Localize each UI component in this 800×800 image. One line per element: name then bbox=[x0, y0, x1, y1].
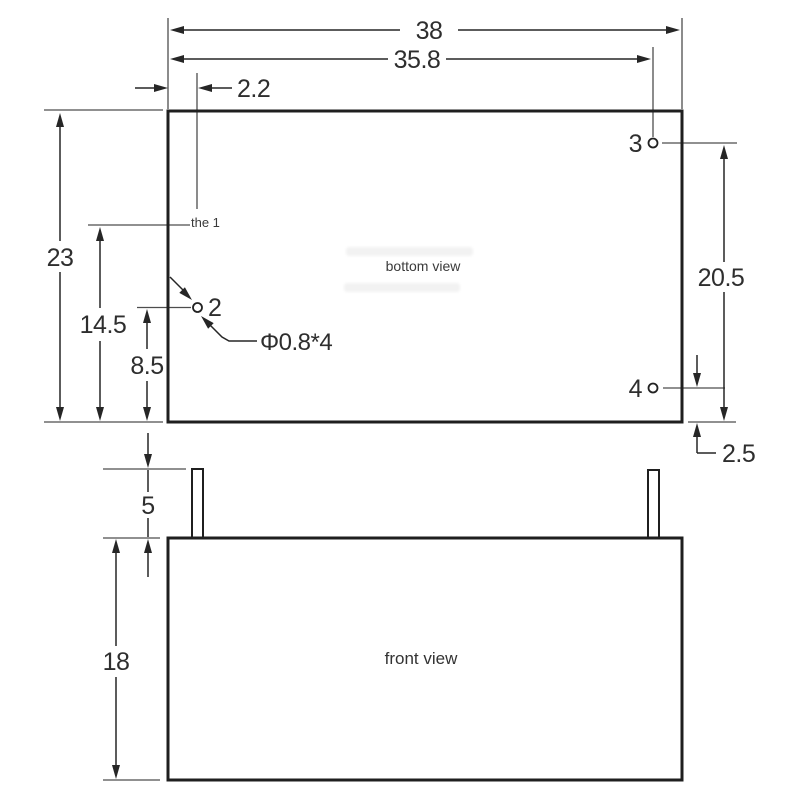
dim-pin-span-y-label: 20.5 bbox=[698, 264, 745, 292]
hole-diameter-callout-label: Φ0.8*4 bbox=[260, 329, 332, 356]
bottom-view-title: bottom view bbox=[386, 258, 462, 274]
front-view-title: front view bbox=[385, 649, 458, 668]
labels: 38 35.8 2.2 23 14.5 8.5 20.5 2.5 5 18 Φ0… bbox=[47, 17, 756, 676]
dim-pin4-offset-y-label: 2.5 bbox=[722, 440, 755, 468]
pin3-hole bbox=[649, 139, 658, 148]
front-view-left-pin bbox=[192, 469, 203, 538]
engineering-drawing-canvas: 38 35.8 2.2 23 14.5 8.5 20.5 2.5 5 18 Φ0… bbox=[0, 0, 800, 800]
dim-pin-length-label: 5 bbox=[141, 492, 154, 520]
dim-pin1-offset-y-label: 14.5 bbox=[80, 311, 127, 339]
dim-pin-span-x-label: 35.8 bbox=[394, 46, 441, 74]
pin4-label: 4 bbox=[629, 375, 643, 403]
dim-overall-depth-label: 23 bbox=[47, 244, 74, 272]
dim-pin2-offset-y-label: 8.5 bbox=[130, 352, 163, 380]
pin2-hole bbox=[193, 303, 202, 312]
dim-overall-width-label: 38 bbox=[416, 17, 443, 45]
part-outlines bbox=[168, 111, 682, 780]
pin1-label: the 1 bbox=[191, 215, 220, 230]
pin3-label: 3 bbox=[629, 130, 642, 158]
pin2-label: 2 bbox=[208, 294, 221, 322]
dim-pin1-offset-x-label: 2.2 bbox=[237, 75, 270, 103]
dim-body-height-label: 18 bbox=[103, 648, 130, 676]
pin4-hole bbox=[649, 384, 658, 393]
technical-drawing: 38 35.8 2.2 23 14.5 8.5 20.5 2.5 5 18 Φ0… bbox=[0, 0, 800, 800]
front-view-right-pin bbox=[648, 470, 659, 538]
